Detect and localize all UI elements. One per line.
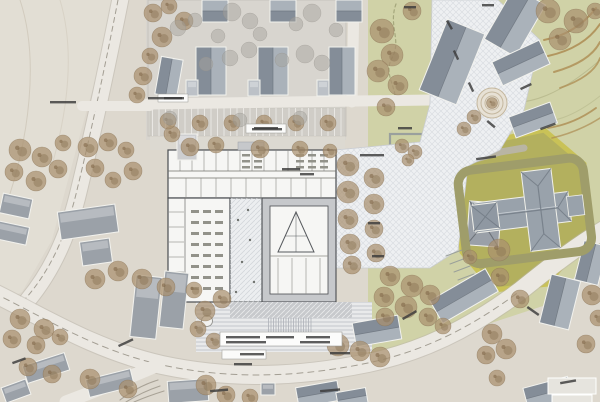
tree-brown: [323, 144, 337, 158]
tree-core: [407, 282, 411, 286]
hall-seating: [191, 265, 199, 268]
tree-brown: [251, 140, 269, 158]
tree-core: [327, 148, 330, 151]
hall-seating: [203, 265, 211, 268]
tree-brown: [482, 324, 502, 344]
tree-brown: [80, 369, 100, 389]
annotation-microtext: [360, 154, 384, 156]
tree-core: [32, 177, 36, 181]
classroom-desks: [254, 166, 262, 169]
tree-brown: [213, 290, 231, 308]
tree-core: [260, 120, 263, 123]
tree-brown: [55, 135, 71, 151]
tree-brown: [292, 141, 308, 157]
tree-core: [380, 293, 384, 297]
tree-brown: [370, 19, 394, 43]
tree-brown: [489, 370, 505, 386]
tree-gray: [242, 13, 258, 29]
annotation-microtext: [330, 352, 350, 354]
tree-core: [582, 340, 586, 344]
tree-brown: [217, 386, 235, 402]
tree-brown: [536, 0, 560, 23]
tree-core: [370, 200, 374, 204]
tree-core: [24, 363, 28, 367]
annotation-microtext: [282, 168, 300, 170]
classroom-desks: [320, 166, 328, 169]
tree-gray: [275, 53, 289, 67]
tree-brown: [364, 194, 384, 214]
tree-core: [588, 291, 592, 295]
tree-brown: [577, 335, 595, 353]
sports-court: [552, 395, 592, 402]
tree-brown: [419, 308, 437, 326]
annotation-microtext: [306, 336, 330, 338]
tree-brown: [5, 163, 23, 181]
garage: [317, 80, 329, 96]
tree-core: [401, 303, 405, 307]
classroom-desks: [242, 166, 250, 169]
tree-brown: [157, 278, 175, 296]
church-apse-roof: [566, 195, 584, 217]
tree-brown: [142, 48, 158, 64]
tree-gray: [199, 57, 213, 71]
outbuilding-roof-highlight: [263, 385, 273, 389]
courtyard-planting: [247, 209, 249, 211]
tree-brown: [78, 137, 98, 157]
garage-roof-highlight: [319, 82, 327, 87]
tree-core: [196, 120, 199, 123]
tree-core: [218, 295, 222, 299]
tree-core: [482, 351, 486, 355]
tree-core: [194, 326, 197, 329]
tree-brown: [403, 2, 421, 20]
tree-core: [324, 120, 327, 123]
tree-gray: [329, 23, 343, 37]
house-roof-dark: [336, 11, 362, 22]
tree-brown: [564, 9, 588, 33]
tree-core: [38, 153, 42, 157]
tree-brown: [395, 296, 417, 318]
courtyard-planting: [237, 219, 239, 221]
tree-core: [543, 6, 548, 11]
tree-core: [32, 341, 36, 345]
annotation-microtext: [398, 127, 412, 129]
classroom-desks: [242, 160, 250, 163]
hall-seating: [203, 221, 211, 224]
tree-brown: [364, 168, 384, 188]
tree-core: [344, 215, 348, 219]
map-root: [0, 0, 600, 402]
annotation-microtext: [240, 353, 264, 355]
tree-core: [91, 164, 95, 168]
tree-core: [594, 315, 597, 318]
tree-brown: [477, 346, 495, 364]
tree-brown: [496, 339, 516, 359]
house-roof-light: [342, 47, 355, 95]
tree-gray: [303, 4, 321, 22]
tree-brown: [488, 239, 510, 261]
tree-core: [104, 138, 108, 142]
tree-core: [48, 370, 52, 374]
tree-core: [202, 381, 206, 385]
tree-brown: [99, 133, 117, 151]
hall-seating: [203, 287, 211, 290]
tree-brown: [144, 4, 162, 22]
tree-core: [571, 16, 576, 21]
tree-brown: [190, 321, 206, 337]
hall-seating: [215, 210, 223, 213]
hall-seating: [203, 243, 211, 246]
label-band: [220, 332, 342, 346]
tree-brown: [491, 268, 509, 286]
tree-brown: [388, 75, 408, 95]
tree-brown: [108, 261, 128, 281]
tree-brown: [401, 275, 423, 297]
tree-brown: [402, 154, 414, 166]
tree-core: [222, 391, 226, 395]
hall-seating: [215, 254, 223, 257]
tree-core: [168, 131, 171, 134]
tree-core: [346, 240, 350, 244]
annotation-microtext: [372, 255, 384, 257]
house-roof-light: [270, 0, 296, 11]
hall-seating: [203, 254, 211, 257]
tree-brown: [343, 256, 361, 274]
tree-core: [158, 33, 162, 37]
courtyard-planting: [241, 261, 243, 263]
forecourt-ramp-hatch: [268, 318, 312, 334]
classroom-desks: [308, 154, 316, 157]
hall-seating: [203, 276, 211, 279]
tree-brown: [32, 147, 52, 167]
tree-brown: [374, 287, 394, 307]
tree-core: [146, 53, 149, 56]
tree-brown: [49, 160, 67, 178]
tree-core: [109, 177, 112, 180]
tree-brown: [340, 234, 360, 254]
tree-core: [165, 3, 168, 6]
tree-core: [386, 272, 390, 276]
tree-core: [124, 385, 128, 389]
tree-brown: [467, 110, 481, 124]
tree-brown: [161, 0, 177, 14]
annotation-microtext: [254, 127, 278, 129]
outbuilding: [261, 383, 275, 395]
tree-core: [343, 188, 347, 192]
tree-brown: [52, 329, 68, 345]
tree-core: [516, 295, 520, 299]
hall-seating: [215, 265, 223, 268]
tree-brown: [320, 115, 336, 131]
tree-core: [15, 146, 19, 150]
tree-core: [471, 114, 474, 117]
tree-core: [372, 249, 376, 253]
tree-core: [399, 143, 402, 146]
tree-brown: [370, 347, 390, 367]
tree-brown: [420, 285, 440, 305]
tree-brown: [380, 266, 400, 286]
tree-core: [296, 146, 299, 149]
tree-brown: [435, 318, 451, 334]
garage: [186, 80, 198, 96]
tree-core: [376, 353, 380, 357]
tree-gray: [296, 45, 314, 63]
tree-core: [129, 167, 133, 171]
hall-seating: [191, 276, 199, 279]
hall-seating: [215, 243, 223, 246]
tree-brown: [206, 333, 222, 349]
tree-brown: [487, 98, 498, 109]
tree-brown: [463, 250, 477, 264]
classroom-desks: [296, 160, 304, 163]
tree-gray: [253, 27, 267, 41]
tree-brown: [395, 139, 409, 153]
school-courtyard-hatch: [230, 198, 262, 302]
hall-seating: [191, 232, 199, 235]
tree-core: [439, 323, 442, 326]
annotation-microtext: [164, 97, 182, 99]
tree-brown: [3, 330, 21, 348]
tree-core: [228, 120, 231, 123]
tree-brown: [132, 269, 152, 289]
tree-core: [555, 35, 559, 39]
house-roof-light: [336, 0, 362, 11]
tree-core: [138, 275, 142, 279]
tree-core: [494, 246, 498, 250]
tree-core: [56, 334, 59, 337]
tree-core: [86, 375, 90, 379]
tree-gray: [188, 13, 202, 27]
tree-core: [591, 8, 594, 11]
tree-core: [356, 347, 360, 351]
tree-core: [412, 149, 415, 152]
tree-brown: [337, 154, 359, 176]
annotation-microtext: [404, 6, 416, 8]
site-plan-drawing: [0, 0, 600, 402]
existing-hall: [79, 238, 112, 266]
tree-brown: [337, 181, 359, 203]
tree-brown: [186, 282, 202, 298]
tree-core: [370, 174, 374, 178]
tree-core: [139, 72, 143, 76]
tree-core: [424, 313, 428, 317]
tree-gray: [233, 113, 247, 127]
tree-core: [162, 283, 166, 287]
hall-seating: [203, 232, 211, 235]
tree-core: [54, 165, 58, 169]
classroom-desks: [308, 166, 316, 169]
tree-core: [246, 394, 249, 397]
annotation-microtext: [226, 336, 260, 338]
annotation-microtext: [482, 4, 494, 6]
tree-gray: [223, 3, 241, 21]
hall-seating: [191, 221, 199, 224]
house-roof-dark: [329, 47, 342, 95]
tree-brown: [134, 67, 152, 85]
tree-core: [405, 158, 407, 160]
annotation-microtext: [300, 341, 330, 343]
tree-core: [373, 67, 377, 71]
tree-brown: [549, 28, 571, 50]
tree-gray: [289, 17, 303, 31]
tree-core: [488, 330, 492, 334]
house: [196, 47, 226, 95]
tree-core: [394, 81, 398, 85]
tree-brown: [511, 290, 529, 308]
hall-seating: [203, 210, 211, 213]
garage: [248, 80, 260, 96]
tree-gray: [222, 50, 238, 66]
tree-brown: [208, 137, 224, 153]
classroom-desks: [320, 160, 328, 163]
tree-brown: [43, 365, 61, 383]
tree-brown: [376, 308, 394, 326]
annotation-microtext: [234, 363, 252, 365]
tree-brown: [152, 27, 172, 47]
hall-seating: [191, 254, 199, 257]
tree-core: [496, 273, 500, 277]
tree-brown: [377, 98, 395, 116]
tree-core: [190, 287, 193, 290]
courtyard-planting: [249, 239, 251, 241]
tree-brown: [338, 209, 358, 229]
annotation-microtext: [300, 173, 314, 175]
tree-core: [502, 345, 506, 349]
courtyard-planting: [253, 281, 255, 283]
tree-brown: [195, 301, 215, 321]
tree-gray: [163, 111, 177, 125]
tree-brown: [181, 138, 199, 156]
tree-core: [377, 26, 382, 31]
tree-brown: [118, 142, 134, 158]
tree-brown: [457, 122, 471, 136]
tree-core: [8, 335, 12, 339]
tree-core: [467, 254, 470, 257]
tree-brown: [129, 87, 145, 103]
tree-core: [16, 315, 20, 319]
garage-roof-highlight: [188, 82, 196, 87]
tree-brown: [587, 3, 600, 19]
tree-brown: [105, 172, 121, 188]
tree-core: [348, 261, 352, 265]
tree-brown: [367, 244, 385, 262]
tree-core: [256, 145, 260, 149]
house: [336, 0, 362, 22]
tree-core: [212, 142, 215, 145]
classroom-desks: [254, 160, 262, 163]
tree-core: [133, 92, 136, 95]
tree-core: [40, 325, 44, 329]
house: [329, 47, 355, 95]
outbuilding-roof: [261, 383, 275, 395]
tree-core: [370, 225, 374, 229]
tree-brown: [10, 309, 30, 329]
tree-brown: [26, 171, 46, 191]
tree-core: [91, 275, 95, 279]
tree-brown: [192, 115, 208, 131]
tree-brown: [124, 162, 142, 180]
courtyard-planting: [235, 291, 237, 293]
garage-roof-highlight: [250, 82, 258, 87]
tree-brown: [582, 285, 600, 305]
annotation-microtext: [226, 341, 266, 343]
tree-core: [381, 313, 385, 317]
tree-gray: [314, 55, 330, 71]
tree-core: [59, 140, 62, 143]
tree-core: [114, 267, 118, 271]
tree-core: [343, 161, 347, 165]
tree-gray: [293, 111, 307, 125]
tree-gray: [241, 42, 257, 58]
hall-seating: [215, 287, 223, 290]
tree-core: [387, 51, 391, 55]
tree-core: [84, 143, 88, 147]
tree-core: [493, 375, 496, 378]
tree-core: [382, 103, 386, 107]
tree-core: [149, 9, 153, 13]
tree-gray: [211, 29, 225, 43]
tree-core: [201, 307, 205, 311]
tree-brown: [85, 269, 105, 289]
hall-seating: [191, 210, 199, 213]
tree-core: [490, 101, 492, 103]
classroom-desks: [242, 154, 250, 157]
hall-seating: [215, 232, 223, 235]
tree-brown: [367, 60, 389, 82]
annotation-microtext: [266, 336, 294, 338]
tree-core: [186, 143, 190, 147]
tree-brown: [27, 336, 45, 354]
tree-brown: [350, 341, 370, 361]
hall-seating: [215, 276, 223, 279]
annotation-microtext: [368, 222, 380, 224]
site-plan-canvas: [0, 0, 600, 402]
hall-seating: [215, 221, 223, 224]
south-canopy-hatch: [230, 302, 352, 318]
tree-core: [426, 291, 430, 295]
tree-core: [122, 147, 125, 150]
classroom-desks: [308, 160, 316, 163]
tree-core: [210, 338, 213, 341]
tree-brown: [86, 159, 104, 177]
tree-brown: [119, 380, 137, 398]
annotation-microtext: [50, 101, 76, 103]
tree-core: [10, 168, 14, 172]
tree-brown: [9, 139, 31, 161]
tree-core: [461, 126, 464, 129]
tree-gray: [170, 20, 186, 36]
hall-seating: [191, 243, 199, 246]
tree-brown: [242, 389, 258, 402]
